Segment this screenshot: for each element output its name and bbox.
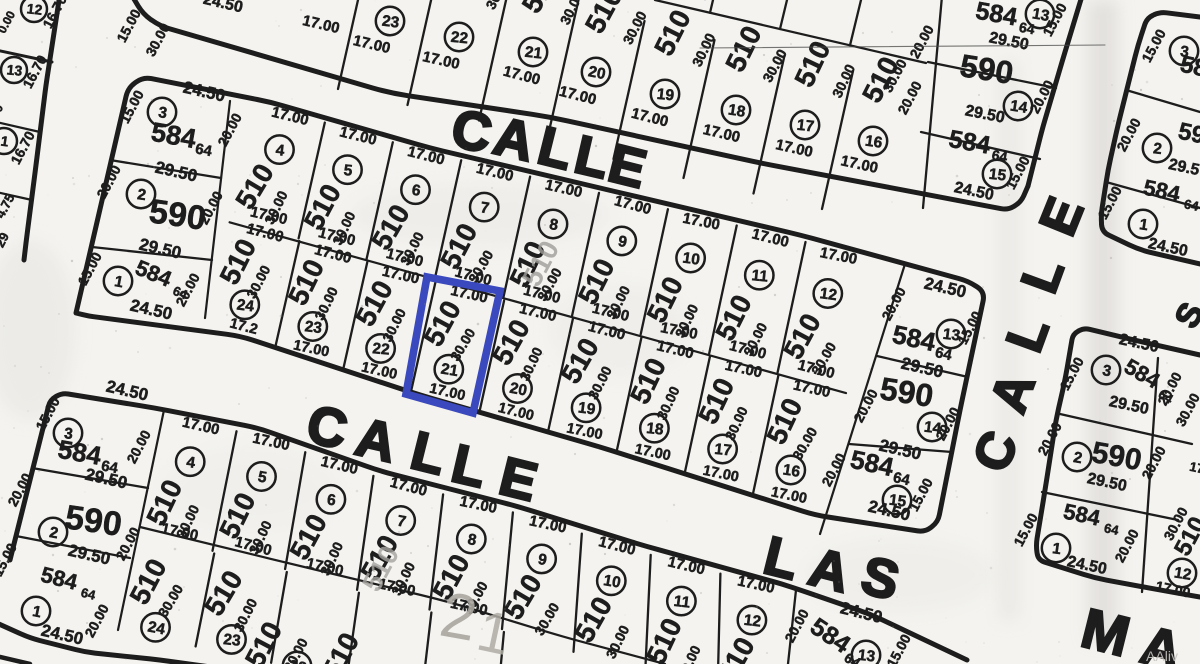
svg-text:17: 17 [1188, 459, 1200, 477]
svg-text:21: 21 [440, 360, 460, 380]
svg-text:19: 19 [577, 399, 597, 418]
svg-text:59: 59 [1176, 118, 1200, 150]
svg-text:13: 13 [857, 647, 876, 664]
svg-text:17: 17 [714, 441, 733, 460]
svg-text:12: 12 [26, 0, 44, 18]
svg-text:590: 590 [63, 498, 124, 544]
svg-text:23: 23 [381, 13, 401, 32]
svg-text:23: 23 [304, 318, 323, 337]
svg-text:24: 24 [146, 619, 167, 639]
svg-text:16: 16 [864, 132, 884, 151]
svg-text:17: 17 [796, 117, 815, 136]
svg-text:20: 20 [587, 63, 607, 83]
svg-text:11: 11 [673, 593, 692, 612]
svg-text:2: 2 [1152, 140, 1162, 158]
svg-text:24: 24 [236, 296, 256, 315]
svg-text:12: 12 [819, 285, 838, 304]
svg-text:18: 18 [727, 101, 747, 120]
svg-text:18: 18 [645, 420, 664, 439]
svg-text:10: 10 [682, 250, 701, 269]
svg-text:21: 21 [524, 44, 543, 63]
svg-text:22: 22 [372, 340, 391, 358]
svg-text:13: 13 [6, 61, 23, 79]
svg-text:20: 20 [508, 380, 528, 400]
svg-text:12: 12 [743, 612, 762, 631]
svg-text:64: 64 [1183, 196, 1200, 214]
svg-text:19: 19 [656, 86, 675, 105]
svg-text:16: 16 [782, 461, 802, 480]
svg-text:10: 10 [602, 572, 622, 592]
svg-text:11: 11 [751, 267, 769, 286]
svg-text:AAliv: AAliv [1146, 648, 1178, 664]
svg-text:22: 22 [450, 29, 469, 48]
svg-text:23: 23 [222, 631, 241, 650]
